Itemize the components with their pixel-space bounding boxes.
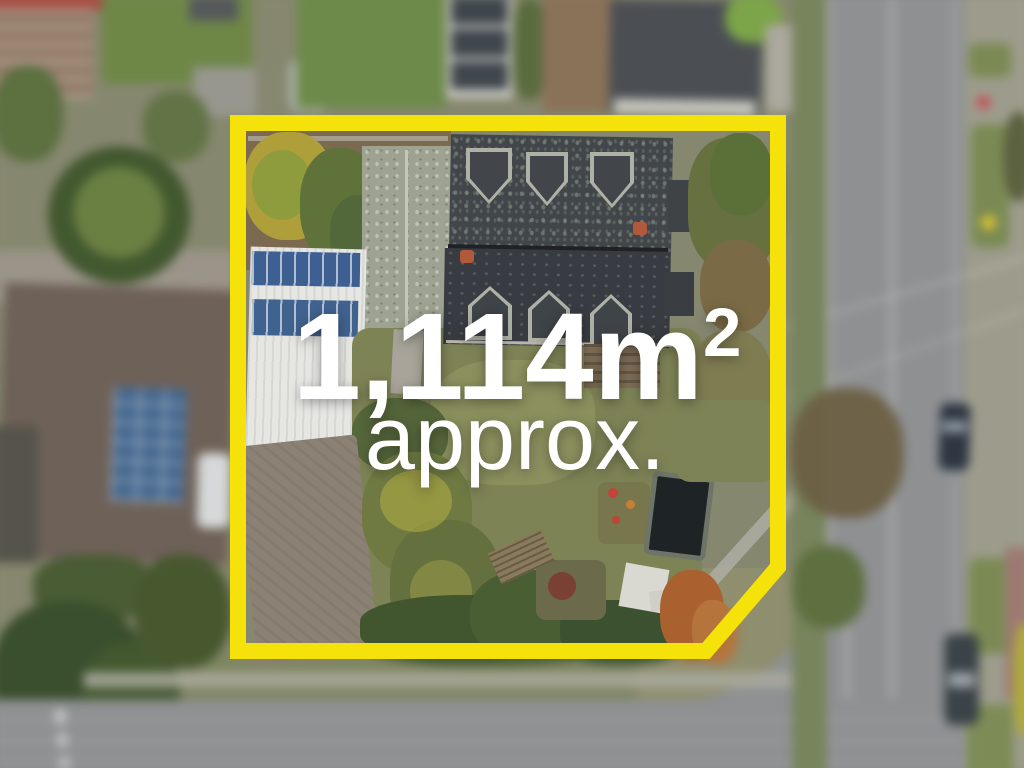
neighbor-lawn-top	[297, 0, 445, 108]
red-bush	[548, 572, 576, 600]
tree	[1003, 112, 1024, 201]
flower-bed	[598, 482, 650, 544]
neighbor-left-pergola	[0, 426, 38, 563]
palm-tree-fronds	[74, 167, 165, 258]
flower	[626, 500, 635, 509]
tree	[1013, 624, 1024, 736]
road-dash-marking	[55, 710, 65, 723]
neighbor-left-solar-array	[110, 387, 187, 503]
neighbor-house-top-wall	[613, 99, 755, 116]
grass-patch	[969, 43, 1012, 78]
road-lane-line	[0, 740, 1024, 742]
shed-solar-panels	[252, 251, 361, 287]
garage-ridge-line	[405, 150, 408, 342]
shrub	[700, 240, 772, 332]
tree	[0, 65, 63, 161]
chimney	[633, 222, 647, 235]
road-lane-line	[0, 762, 1024, 764]
road-center-line	[890, 0, 895, 768]
bush	[792, 545, 865, 628]
tree	[134, 555, 230, 669]
car-windshield	[942, 421, 966, 433]
road-dash-marking	[57, 733, 67, 746]
flower	[612, 516, 620, 524]
tree	[512, 0, 547, 100]
fire-hydrant-marker	[977, 96, 990, 109]
solar-panel	[451, 0, 508, 25]
yellow-marker	[981, 216, 996, 230]
aerial-photo: 1,114m2 approx.	[0, 0, 1024, 768]
flower	[608, 488, 618, 498]
tree	[143, 91, 210, 162]
parked-van	[197, 453, 231, 529]
solar-panel	[451, 29, 508, 57]
road-dash-marking	[59, 757, 69, 768]
dirt-driveway	[542, 0, 617, 112]
tree	[710, 133, 772, 215]
garden-path	[390, 329, 423, 394]
chimney	[460, 250, 474, 263]
roadside-strip	[792, 0, 827, 768]
tree-over-road	[790, 388, 904, 518]
solar-panel	[451, 61, 508, 89]
grass-patch	[676, 400, 776, 482]
property-driveway	[235, 434, 379, 662]
wattle-blossom	[380, 470, 452, 532]
neighbor-shed-dark	[189, 0, 238, 21]
shed-solar-panels	[252, 299, 359, 337]
garage-roof	[362, 146, 454, 346]
trampoline	[643, 471, 715, 562]
road-horizontal	[0, 700, 1024, 768]
back-steps	[584, 344, 660, 388]
car-windshield	[948, 672, 974, 687]
parked-car	[938, 403, 971, 471]
footpath	[84, 672, 825, 687]
main-house-wing	[664, 272, 694, 316]
road-lane-line	[0, 719, 1024, 721]
